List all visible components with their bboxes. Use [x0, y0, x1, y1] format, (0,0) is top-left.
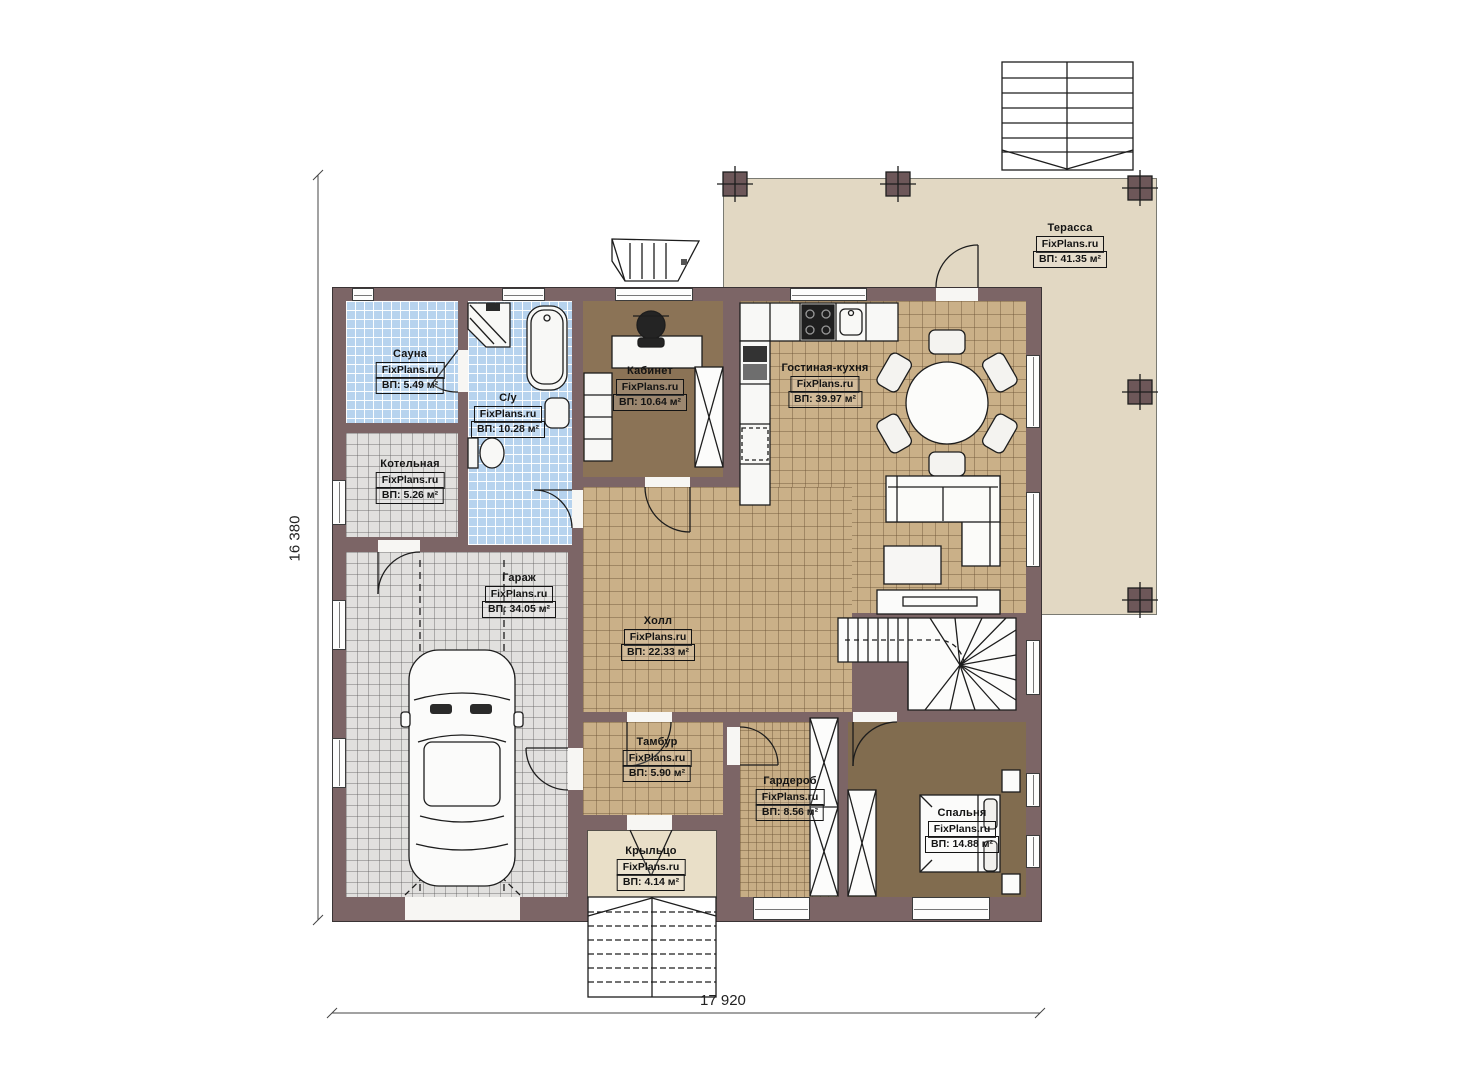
- room-area: ВП: 4.14 м²: [617, 874, 685, 891]
- watermark: FixPlans.ru: [376, 472, 445, 489]
- room-area: ВП: 5.26 м²: [376, 487, 444, 504]
- room-label-garage: Гараж FixPlans.ru ВП: 34.05 м²: [482, 572, 556, 618]
- watermark: FixPlans.ru: [616, 379, 685, 396]
- room-area: ВП: 22.33 м²: [621, 644, 695, 661]
- watermark: FixPlans.ru: [474, 406, 543, 423]
- room-label-vestibule: Тамбур FixPlans.ru ВП: 5.90 м²: [623, 736, 692, 782]
- watermark: FixPlans.ru: [485, 586, 554, 603]
- watermark: FixPlans.ru: [376, 362, 445, 379]
- watermark: FixPlans.ru: [624, 629, 693, 646]
- watermark: FixPlans.ru: [791, 376, 860, 393]
- stove-icon: [802, 305, 834, 339]
- coffee-table-icon: [884, 546, 941, 584]
- tv-stand-icon: [877, 590, 1000, 614]
- room-area: ВП: 10.28 м²: [471, 421, 545, 438]
- room-label-wardrobe: Гардероб FixPlans.ru ВП: 8.56 м²: [756, 775, 825, 821]
- room-area: ВП: 8.56 м²: [756, 804, 824, 821]
- bathtub-icon: [527, 306, 567, 390]
- room-label-sauna: Сауна FixPlans.ru ВП: 5.49 м²: [376, 348, 445, 394]
- watermark: FixPlans.ru: [617, 859, 686, 876]
- closet-icon: [695, 367, 723, 467]
- dining-table-icon: [875, 330, 1019, 476]
- shower-icon: [468, 303, 510, 347]
- room-area: ВП: 5.90 м²: [623, 765, 691, 782]
- kitchen-sink-icon: [840, 309, 862, 335]
- room-label-office: Кабинет FixPlans.ru ВП: 10.64 м²: [613, 365, 687, 411]
- floor-plan: Сауна FixPlans.ru ВП: 5.49 м² С/у FixPla…: [0, 0, 1473, 1080]
- sink-icon: [545, 398, 569, 428]
- toilet-icon: [468, 438, 504, 468]
- room-label-bathroom: С/у FixPlans.ru ВП: 10.28 м²: [471, 392, 545, 438]
- room-label-hall: Холл FixPlans.ru ВП: 22.33 м²: [621, 615, 695, 661]
- room-area: ВП: 39.97 м²: [788, 391, 862, 408]
- room-label-porch: Крыльцо FixPlans.ru ВП: 4.14 м²: [617, 845, 686, 891]
- room-area: ВП: 34.05 м²: [482, 601, 556, 618]
- room-label-boiler: Котельная FixPlans.ru ВП: 5.26 м²: [376, 458, 445, 504]
- watermark: FixPlans.ru: [928, 821, 997, 838]
- room-area: ВП: 5.49 м²: [376, 377, 444, 394]
- watermark: FixPlans.ru: [1036, 236, 1105, 253]
- interior-staircase: [838, 618, 1016, 710]
- watermark: FixPlans.ru: [756, 789, 825, 806]
- room-area: ВП: 14.88 м²: [925, 836, 999, 853]
- room-area: ВП: 10.64 м²: [613, 394, 687, 411]
- office-chair-icon: [633, 311, 669, 347]
- room-area: ВП: 41.35 м²: [1033, 251, 1107, 268]
- nightstand-icon: [1002, 770, 1020, 894]
- dimension-height-label: 16 380: [286, 516, 303, 562]
- room-label-bedroom: Спальня FixPlans.ru ВП: 14.88 м²: [925, 807, 999, 853]
- room-label-terrace: Терасса FixPlans.ru ВП: 41.35 м²: [1033, 222, 1107, 268]
- bookshelf-icon: [584, 373, 612, 461]
- room-label-living-kitchen: Гостиная-кухня FixPlans.ru ВП: 39.97 м²: [781, 362, 868, 408]
- side-steps: [612, 239, 699, 281]
- terrace-stairs: [1002, 62, 1133, 170]
- entrance-stairs: [588, 897, 716, 997]
- dimension-width-label: 17 920: [700, 992, 746, 1009]
- watermark: FixPlans.ru: [623, 750, 692, 767]
- plan-details: [0, 0, 1473, 1080]
